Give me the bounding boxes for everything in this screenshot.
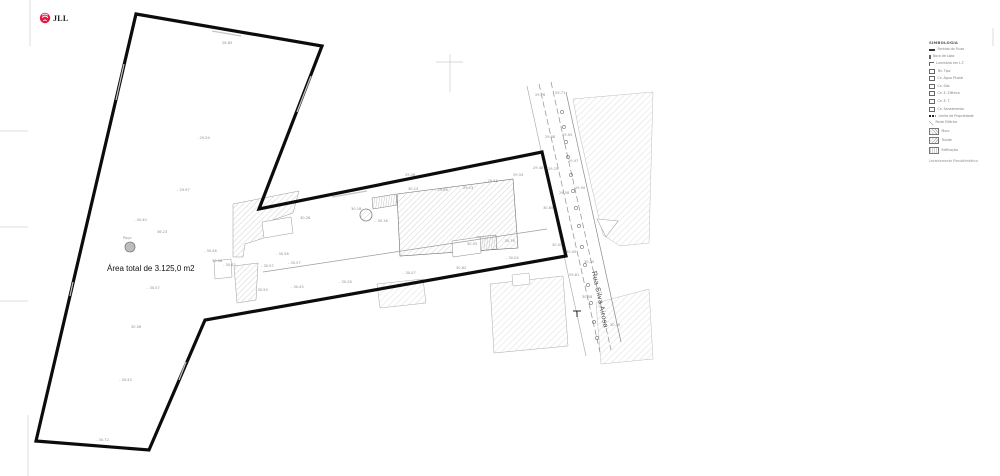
legend-caption: Levantamento Planialtimétrico [929, 159, 995, 163]
elevation-label: - 30.56 [276, 252, 289, 256]
elevation-label: 29.08 [545, 135, 556, 139]
elevation-label: - 30.07 [403, 271, 416, 275]
post-legend-icon [929, 55, 931, 59]
legend-item-label: Tel. Tipo [938, 70, 951, 73]
jll-logo: JLL [40, 13, 69, 23]
stairs-top [372, 194, 397, 209]
elevation-label: - 30.26 [339, 280, 352, 284]
elevation-label: - 30.40 [134, 218, 147, 222]
legend-item: Muro [929, 128, 995, 135]
elevation-label: 30.05 [566, 250, 576, 254]
legend-item-label: Sentido do Fluxo [938, 48, 965, 51]
legend-item-label: Edificação [942, 149, 958, 152]
elevation-label: 30.56 [131, 325, 142, 329]
elevation-label: - 29.97 [177, 188, 190, 192]
elevation-label: 30.85 [543, 206, 553, 210]
elevation-label: - 30.62 [223, 263, 236, 267]
elevation-label: 30.18 [351, 207, 362, 211]
legend-panel: SIMBOLOGIA Sentido do FluxoBoca de LoboL… [929, 40, 995, 163]
legend-item-label: Cx. E. Elétrica [938, 92, 960, 95]
elevation-label: - 30.72 [96, 438, 109, 442]
elevation-label: - 30.07 [147, 286, 160, 290]
elevation-label: - 30.59 [255, 288, 268, 292]
box-legend-icon [929, 91, 935, 96]
elevation-label: 29.25 [548, 167, 558, 171]
legend-item-label: Luminária em L.T. [936, 62, 964, 65]
slash-legend-icon [929, 121, 933, 125]
elevation-label: 29.47 [568, 159, 578, 163]
elevation-label: Poço [123, 236, 131, 240]
well-symbol [125, 242, 135, 252]
elevation-labels: - 29.54- 29.97- 30.4036.23Poço- 30.4630.… [96, 41, 621, 442]
elevation-label: 29.81 [569, 273, 579, 277]
elevation-label: - 30.43 [119, 378, 132, 382]
legend-item: Sentido do Fluxo [929, 48, 995, 52]
legend-item: Talude [929, 137, 995, 144]
elevation-label: 29.71 [555, 91, 565, 95]
elevation-label: - 30.46 [204, 249, 217, 253]
site-plan-canvas: Rua Silva Airosa [0, 0, 1000, 476]
elevation-label: 29.76 [535, 93, 546, 97]
elevation-label: 29.54 [513, 173, 524, 177]
elevation-label: 29.05 [562, 133, 572, 137]
legend-item: Tel. Tipo [929, 69, 995, 74]
elevation-label: 26.85 [222, 41, 232, 45]
elevation-label: 30.05 [552, 243, 562, 247]
legend-item-label: Talude [942, 139, 952, 142]
box-legend-icon [929, 107, 935, 112]
legend-item: Poste Elétrico [929, 121, 995, 125]
legend-item: Boca de Lobo [929, 55, 995, 59]
elevation-label: 30.55 [467, 242, 477, 246]
elevation-label: - 30.76 [502, 239, 515, 243]
elevation-label: 30.26 [300, 216, 311, 220]
elevation-label: 30.14 [408, 187, 419, 191]
elevation-label: - 29.06 [435, 188, 448, 192]
legend-item-label: Muro [942, 130, 950, 133]
box-legend-icon [929, 99, 935, 104]
boundary-openings [70, 31, 367, 380]
legend-title: SIMBOLOGIA [929, 40, 995, 45]
elevation-label: 29.48 [533, 166, 544, 170]
legend-item-label: Limite de Propriedade [939, 115, 974, 118]
line-legend-icon [929, 49, 935, 51]
box-legend-icon [929, 76, 935, 81]
elevation-label: 30.62 [456, 266, 466, 270]
legend-item-list: Sentido do FluxoBoca de LoboLuminária em… [929, 48, 995, 154]
elevation-label: 36.23 [157, 230, 167, 234]
legend-item-label: Poste Elétrico [936, 121, 958, 124]
legend-item: Cx. Água Pluvial [929, 76, 995, 81]
elevation-label: 30.25 [584, 260, 594, 264]
legend-item-label: Cx. Saneamento [938, 108, 964, 111]
elevation-label: 29.58 [559, 191, 570, 195]
elevation-label: - 30.57 [288, 261, 301, 265]
legend-item: Cx. Gás [929, 84, 995, 89]
box-legend-icon [929, 69, 935, 74]
hydrant-icon [573, 311, 581, 317]
tree-symbol [360, 209, 372, 221]
elevation-label: - 30.16 [375, 219, 388, 223]
lamp-legend-icon [929, 62, 934, 67]
legend-item-label: Cx. Água Pluvial [938, 77, 964, 80]
legend-item-label: Cx. Gás [938, 85, 950, 88]
legend-item-label: Cx. E. T. [938, 100, 951, 103]
jll-logo-icon [40, 13, 50, 23]
legend-item: Cx. Saneamento [929, 107, 995, 112]
elevation-label: - 29.54 [197, 136, 210, 140]
legend-item: Limite de Propriedade [929, 114, 995, 118]
elevation-label: 30.58 [212, 259, 223, 263]
swatch2-legend-icon [929, 137, 939, 144]
total-area-label: Área total de 3.125,0 m2 [107, 264, 195, 273]
elevation-label: 29.28 [405, 173, 416, 177]
elevation-label: - 30.57 [261, 264, 274, 268]
grid-cross [436, 54, 463, 92]
legend-item: Cx. E. T. [929, 99, 995, 104]
swatch3-legend-icon [929, 147, 939, 154]
legend-item-label: Boca de Lobo [933, 55, 955, 58]
elevation-label: 29.13 [463, 186, 473, 190]
elevation-label: 30.30 [610, 323, 621, 327]
elevation-label: 29.50 [575, 186, 586, 190]
legend-item: Luminária em L.T. [929, 62, 995, 67]
jll-wordmark: JLL [53, 14, 69, 23]
elevation-label: - 30.04 [506, 256, 519, 260]
swatch1-legend-icon [929, 128, 939, 135]
elevation-label: 30.58 [582, 295, 593, 299]
dash-legend-icon [929, 115, 936, 117]
legend-item: Edificação [929, 147, 995, 154]
box-legend-icon [929, 84, 935, 89]
elevation-label: - 30.45 [291, 285, 304, 289]
legend-item: Cx. E. Elétrica [929, 91, 995, 96]
elevation-label: - 29.55 [485, 179, 498, 183]
stairs-and-walls-hatch [214, 191, 299, 303]
